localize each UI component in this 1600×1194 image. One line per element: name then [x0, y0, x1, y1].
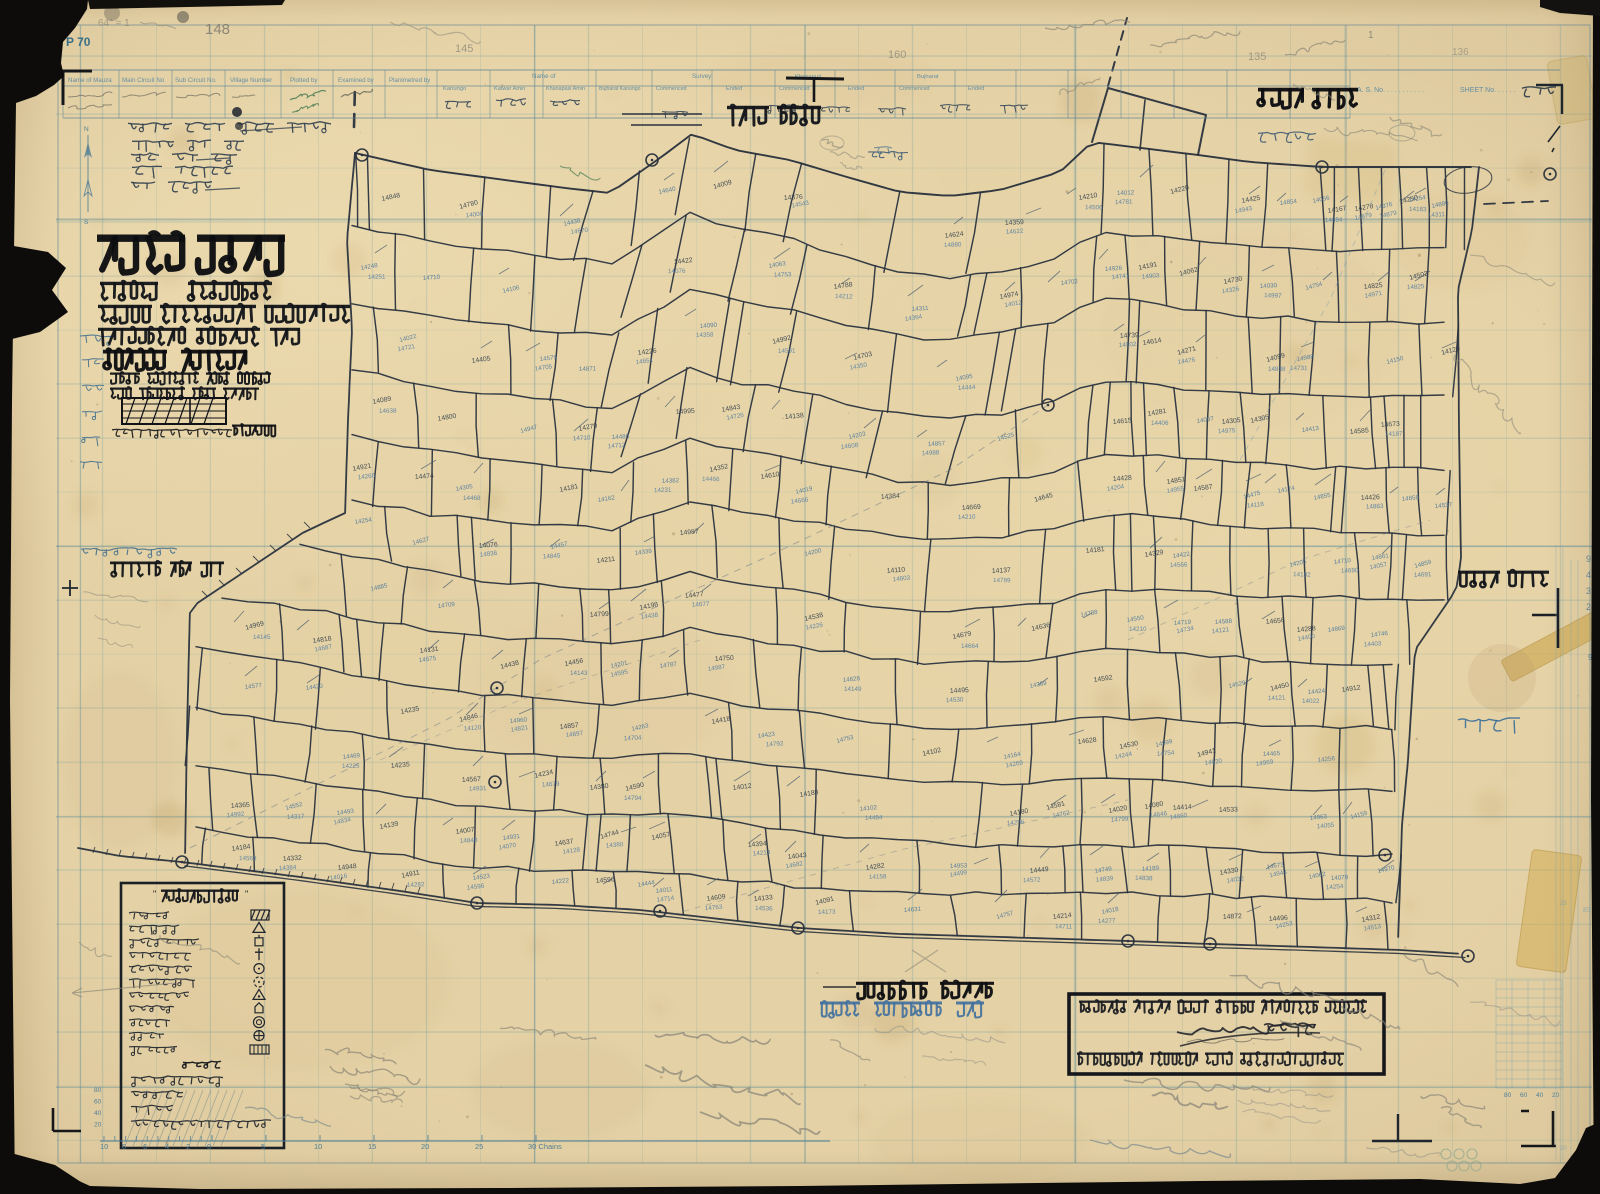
svg-text:14603: 14603 — [892, 575, 911, 584]
svg-text:14244: 14244 — [1114, 751, 1133, 761]
svg-text:Kanungo: Kanungo — [443, 86, 466, 92]
svg-text:14931: 14931 — [502, 833, 520, 842]
svg-text:14660: 14660 — [1169, 812, 1188, 821]
svg-text:2: 2 — [186, 1142, 190, 1151]
svg-text:14120: 14120 — [464, 724, 483, 733]
svg-text:4: 4 — [165, 1142, 169, 1151]
svg-text:14753: 14753 — [836, 734, 855, 745]
svg-text:14537: 14537 — [1435, 501, 1453, 510]
svg-text:60: 60 — [1520, 1092, 1528, 1099]
svg-text:14277: 14277 — [1098, 918, 1116, 926]
svg-text:1: 1 — [1368, 30, 1374, 41]
svg-text:14012: 14012 — [732, 783, 752, 792]
svg-text:14159: 14159 — [1350, 810, 1369, 821]
svg-text:Main Circuit No: Main Circuit No — [122, 77, 165, 84]
svg-text:14254: 14254 — [354, 516, 373, 526]
svg-text:14608: 14608 — [840, 442, 859, 451]
svg-text:14709: 14709 — [437, 601, 455, 610]
svg-text:14365: 14365 — [231, 802, 251, 810]
svg-text:14703: 14703 — [853, 351, 873, 362]
svg-text:14836: 14836 — [479, 550, 498, 559]
svg-text:14834: 14834 — [333, 816, 352, 827]
svg-text:14638: 14638 — [379, 408, 397, 415]
svg-text:14714: 14714 — [656, 895, 675, 904]
svg-text:14871: 14871 — [579, 365, 597, 373]
svg-text:14332: 14332 — [283, 855, 303, 863]
svg-text:14669: 14669 — [962, 504, 982, 512]
svg-text:14182: 14182 — [1293, 571, 1311, 579]
svg-text:14369: 14369 — [1029, 680, 1048, 690]
svg-text:14210: 14210 — [958, 514, 976, 522]
svg-text:40: 40 — [94, 1110, 102, 1117]
svg-text:14854: 14854 — [1279, 198, 1297, 207]
svg-text:14222: 14222 — [551, 877, 569, 886]
svg-text:14530: 14530 — [946, 696, 964, 704]
svg-text:14339: 14339 — [634, 548, 653, 557]
svg-text:14590: 14590 — [625, 782, 645, 793]
svg-text:P 70: P 70 — [66, 35, 91, 49]
svg-text:14848: 14848 — [460, 837, 478, 845]
svg-text:14251: 14251 — [368, 274, 386, 281]
svg-text:14426: 14426 — [1361, 494, 1380, 502]
svg-text:14183: 14183 — [1409, 206, 1427, 213]
svg-text:14955: 14955 — [1166, 485, 1185, 495]
svg-text:14269: 14269 — [1005, 759, 1024, 769]
svg-text:14466: 14466 — [702, 476, 720, 483]
svg-text:14799: 14799 — [1111, 816, 1129, 824]
svg-text:14138: 14138 — [785, 412, 805, 421]
svg-text:14076: 14076 — [668, 268, 686, 275]
svg-text:14422: 14422 — [1172, 551, 1191, 560]
svg-text:14645: 14645 — [1034, 492, 1054, 504]
svg-text:14911: 14911 — [401, 869, 421, 880]
svg-text:14143: 14143 — [570, 670, 588, 677]
svg-text:14012: 14012 — [1004, 299, 1023, 309]
svg-text:14405: 14405 — [471, 355, 491, 365]
svg-text:14162: 14162 — [597, 494, 616, 504]
svg-text:14656: 14656 — [1265, 617, 1285, 626]
svg-text:14016: 14016 — [329, 873, 348, 882]
svg-text:14988: 14988 — [922, 449, 940, 457]
svg-text:14523: 14523 — [472, 873, 491, 882]
svg-text:14711: 14711 — [1055, 923, 1073, 931]
svg-text:20: 20 — [94, 1122, 102, 1129]
svg-text:14969: 14969 — [1255, 759, 1274, 768]
svg-text:14502: 14502 — [1119, 341, 1137, 349]
svg-text:14679: 14679 — [952, 630, 972, 641]
svg-text:14145: 14145 — [253, 634, 271, 641]
svg-text:14457: 14457 — [550, 540, 569, 551]
svg-text:14011: 14011 — [655, 886, 673, 895]
svg-text:14282: 14282 — [865, 862, 885, 872]
svg-text:14781: 14781 — [1115, 198, 1133, 206]
svg-text:14358: 14358 — [696, 332, 714, 340]
svg-text:14753: 14753 — [774, 271, 792, 279]
svg-text:14484: 14484 — [865, 814, 883, 822]
svg-text:14403: 14403 — [1364, 640, 1382, 648]
svg-text:14620: 14620 — [1204, 758, 1223, 767]
svg-text:Plotted by: Plotted by — [290, 77, 318, 84]
svg-text:Katwar Amin: Katwar Amin — [494, 86, 525, 92]
svg-text:14486: 14486 — [612, 433, 630, 441]
svg-text:14449: 14449 — [1029, 866, 1049, 875]
svg-text:14055: 14055 — [1317, 822, 1336, 831]
svg-text:14702: 14702 — [1060, 278, 1078, 287]
svg-text:Ended: Ended — [848, 86, 864, 92]
svg-text:14352: 14352 — [709, 463, 729, 474]
svg-text:14691: 14691 — [1414, 571, 1432, 579]
svg-text:14214: 14214 — [1052, 912, 1072, 921]
svg-text:14754: 14754 — [1157, 749, 1176, 758]
svg-text:14566: 14566 — [1170, 561, 1188, 569]
svg-text:14552: 14552 — [285, 801, 304, 812]
svg-text:80: 80 — [94, 1087, 102, 1094]
svg-text:14469: 14469 — [342, 752, 360, 761]
svg-text:14009: 14009 — [713, 179, 733, 191]
svg-text:14380: 14380 — [606, 841, 625, 850]
svg-text:83: 83 — [1583, 907, 1591, 914]
svg-text:14872: 14872 — [1223, 913, 1242, 921]
svg-text:14592: 14592 — [1093, 674, 1113, 684]
svg-text:14800: 14800 — [437, 413, 457, 423]
svg-text:14855: 14855 — [1313, 492, 1332, 502]
svg-text:14181: 14181 — [1085, 546, 1105, 555]
svg-text:14788: 14788 — [833, 281, 853, 291]
svg-text:14187: 14187 — [1385, 431, 1403, 438]
svg-text:14948: 14948 — [337, 863, 357, 872]
svg-text:14690: 14690 — [1341, 567, 1359, 575]
svg-text:14757: 14757 — [996, 910, 1015, 921]
svg-text:14995: 14995 — [676, 408, 696, 416]
svg-text:14149: 14149 — [844, 686, 862, 693]
svg-text:135: 135 — [1248, 51, 1266, 63]
svg-text:14450: 14450 — [1270, 682, 1290, 693]
svg-text:Planimetred by: Planimetred by — [389, 77, 431, 84]
svg-text:14000: 14000 — [465, 211, 484, 220]
svg-text:14588: 14588 — [1215, 618, 1233, 626]
svg-text:14677: 14677 — [692, 601, 710, 609]
svg-text:14266: 14266 — [357, 472, 376, 481]
svg-text:Commenced: Commenced — [899, 86, 930, 92]
svg-text:145: 145 — [455, 43, 473, 55]
svg-text:14212: 14212 — [835, 293, 853, 301]
svg-text:14636: 14636 — [1031, 622, 1051, 633]
svg-text:14631: 14631 — [904, 906, 922, 914]
svg-text:14158: 14158 — [869, 873, 887, 881]
svg-text:14495: 14495 — [950, 687, 969, 695]
svg-text:14628: 14628 — [1077, 737, 1097, 746]
svg-text:14530: 14530 — [1119, 740, 1139, 751]
svg-text:14468: 14468 — [463, 495, 481, 502]
svg-text:14413: 14413 — [1301, 425, 1319, 434]
svg-text:14174: 14174 — [1277, 485, 1296, 495]
svg-text:14536: 14536 — [755, 905, 773, 913]
svg-text:14997: 14997 — [1264, 292, 1282, 300]
svg-text:14200: 14200 — [804, 547, 823, 558]
svg-text:14992: 14992 — [226, 811, 245, 820]
svg-text:14637: 14637 — [554, 838, 574, 848]
svg-text:14609: 14609 — [706, 893, 726, 903]
svg-text:14022: 14022 — [399, 333, 418, 344]
svg-text:14861: 14861 — [1371, 552, 1390, 562]
svg-text:14839: 14839 — [1095, 875, 1114, 884]
svg-text:14091: 14091 — [815, 896, 835, 907]
svg-text:14596: 14596 — [466, 883, 485, 892]
svg-text:14710: 14710 — [423, 274, 441, 282]
svg-text:14428: 14428 — [1113, 475, 1133, 483]
svg-text:14731: 14731 — [1290, 365, 1308, 372]
svg-text:14089: 14089 — [372, 395, 392, 406]
svg-text:20: 20 — [421, 1142, 429, 1151]
svg-text:14533: 14533 — [1219, 806, 1238, 814]
svg-text:14912: 14912 — [1341, 684, 1361, 694]
svg-text:8: 8 — [122, 1142, 126, 1151]
svg-text:14493: 14493 — [336, 808, 355, 817]
svg-text:6: 6 — [143, 1142, 147, 1151]
svg-text:14102: 14102 — [859, 804, 877, 813]
svg-text:14020: 14020 — [1108, 805, 1128, 815]
svg-text:14746: 14746 — [1370, 630, 1388, 639]
svg-text:14281: 14281 — [1147, 408, 1167, 418]
svg-text:14137: 14137 — [992, 567, 1011, 575]
svg-text:25: 25 — [1560, 901, 1567, 907]
svg-text:14131: 14131 — [419, 646, 439, 655]
svg-text:14063: 14063 — [768, 260, 787, 270]
svg-text:14210: 14210 — [1078, 192, 1098, 202]
svg-text:14384: 14384 — [279, 864, 297, 872]
svg-text:5: 5 — [261, 1142, 265, 1151]
svg-text:14305: 14305 — [455, 483, 474, 493]
svg-text:14799: 14799 — [993, 577, 1011, 584]
svg-text:14400: 14400 — [1297, 633, 1316, 643]
svg-text:14567: 14567 — [462, 776, 481, 784]
svg-text:14857: 14857 — [928, 440, 946, 448]
svg-text:14710: 14710 — [1333, 557, 1351, 566]
svg-text:14885: 14885 — [370, 582, 389, 593]
svg-text:14679: 14679 — [542, 781, 560, 789]
svg-text:SHEET No. . . . . .: SHEET No. . . . . . — [1460, 87, 1516, 94]
svg-text:14173: 14173 — [818, 909, 836, 916]
svg-text:14180: 14180 — [1009, 808, 1029, 818]
svg-text:2: 2 — [1586, 602, 1591, 612]
svg-text:14380: 14380 — [589, 783, 609, 792]
svg-text:14394: 14394 — [748, 840, 768, 849]
svg-text:14848: 14848 — [381, 192, 401, 203]
svg-text:N: N — [84, 126, 89, 133]
svg-text:14744: 14744 — [600, 829, 620, 841]
svg-text:14012: 14012 — [1117, 189, 1135, 197]
svg-text:14585: 14585 — [1350, 427, 1370, 436]
svg-text:14992: 14992 — [772, 335, 792, 346]
svg-text:14121: 14121 — [1268, 694, 1286, 702]
svg-text:": " — [153, 889, 156, 899]
svg-text:14710: 14710 — [573, 434, 591, 442]
svg-text:160: 160 — [888, 49, 906, 61]
svg-text:14270: 14270 — [578, 422, 598, 433]
svg-text:14007: 14007 — [455, 826, 475, 836]
svg-text:14118: 14118 — [1246, 501, 1264, 510]
svg-text:14682: 14682 — [785, 860, 804, 870]
svg-text:14438: 14438 — [563, 217, 582, 228]
svg-text:14090: 14090 — [700, 322, 718, 330]
svg-text:14943: 14943 — [1234, 205, 1253, 215]
svg-text:Ended: Ended — [968, 86, 984, 92]
svg-text:14424: 14424 — [1308, 687, 1326, 696]
svg-text:Bujharat: Bujharat — [917, 74, 939, 80]
svg-text:14278: 14278 — [1354, 203, 1374, 213]
svg-text:14673: 14673 — [1381, 421, 1401, 429]
svg-text:14615: 14615 — [1113, 417, 1133, 426]
svg-text:14422: 14422 — [673, 257, 693, 266]
svg-text:15: 15 — [368, 1142, 376, 1151]
svg-text:14591: 14591 — [778, 348, 796, 355]
svg-text:14780: 14780 — [459, 199, 479, 211]
svg-text:14423: 14423 — [757, 731, 776, 740]
svg-text:14317: 14317 — [287, 813, 305, 821]
svg-text:S: S — [84, 219, 89, 226]
svg-text:60: 60 — [94, 1099, 102, 1106]
svg-text:14587: 14587 — [1193, 484, 1213, 493]
svg-text:14670: 14670 — [570, 227, 589, 236]
svg-text:14184: 14184 — [231, 843, 251, 853]
svg-text:14420: 14420 — [305, 683, 324, 692]
svg-text:14577: 14577 — [244, 682, 262, 691]
svg-text:25: 25 — [475, 1142, 483, 1151]
svg-text:14030: 14030 — [1260, 282, 1278, 290]
svg-text:14858: 14858 — [1401, 494, 1419, 503]
svg-text:14043: 14043 — [787, 852, 807, 861]
svg-text:Survey: Survey — [692, 73, 712, 80]
svg-text:14825: 14825 — [1407, 283, 1425, 291]
svg-text:14203: 14203 — [848, 430, 867, 441]
svg-text:14987: 14987 — [680, 528, 700, 537]
svg-text:14845: 14845 — [543, 552, 561, 560]
svg-text:14794: 14794 — [624, 795, 642, 802]
svg-text:14705: 14705 — [534, 363, 553, 372]
svg-text:14666: 14666 — [790, 496, 809, 505]
svg-text:14022: 14022 — [1302, 698, 1320, 705]
svg-text:14506: 14506 — [1085, 204, 1103, 211]
svg-text:14664: 14664 — [961, 643, 979, 650]
svg-text:14947: 14947 — [520, 424, 539, 435]
svg-text:20: 20 — [1560, 1146, 1567, 1152]
svg-text:14788: 14788 — [1080, 609, 1099, 619]
svg-text:14062: 14062 — [1308, 871, 1327, 881]
svg-text:14139: 14139 — [379, 820, 399, 831]
svg-text:14070: 14070 — [498, 842, 517, 852]
svg-text:14622: 14622 — [1006, 228, 1024, 236]
svg-text:14226: 14226 — [805, 621, 824, 631]
svg-text:14414: 14414 — [1173, 804, 1193, 812]
svg-text:14465: 14465 — [1263, 750, 1281, 758]
svg-text:14610: 14610 — [760, 471, 780, 481]
svg-text:14425: 14425 — [1241, 195, 1261, 205]
svg-text:80: 80 — [1504, 1092, 1512, 1099]
svg-text:14624: 14624 — [944, 231, 964, 240]
svg-text:Ended: Ended — [726, 86, 742, 92]
svg-text:14749: 14749 — [1094, 865, 1113, 875]
svg-text:14550: 14550 — [1126, 614, 1145, 624]
svg-text:14739: 14739 — [1120, 332, 1139, 340]
svg-text:Village Number: Village Number — [230, 77, 272, 84]
svg-text:14444: 14444 — [958, 384, 976, 392]
svg-text:14750: 14750 — [715, 655, 735, 663]
svg-text:14359: 14359 — [1005, 219, 1024, 227]
svg-text:Khanapasi Amin: Khanapasi Amin — [546, 86, 585, 92]
svg-text:Commenced: Commenced — [656, 86, 687, 92]
svg-text:14311: 14311 — [912, 305, 930, 313]
svg-text:14235: 14235 — [391, 761, 411, 770]
svg-text:14726: 14726 — [726, 412, 745, 422]
svg-text:14167: 14167 — [1327, 205, 1347, 215]
svg-text:14869: 14869 — [1327, 625, 1346, 634]
svg-text:14894: 14894 — [1325, 216, 1343, 224]
svg-text:14350: 14350 — [849, 361, 868, 371]
svg-text:14095: 14095 — [955, 373, 974, 383]
svg-text:14406: 14406 — [1151, 420, 1169, 427]
svg-text:14675: 14675 — [418, 655, 437, 664]
svg-text:Name of Mauza: Name of Mauza — [68, 77, 112, 84]
svg-text:14032: 14032 — [1226, 875, 1245, 885]
svg-text:14838: 14838 — [1268, 366, 1286, 373]
svg-text:14329: 14329 — [1144, 549, 1164, 559]
svg-text:14762: 14762 — [1052, 810, 1071, 820]
svg-text:14628: 14628 — [842, 675, 860, 684]
svg-text:30 Chains: 30 Chains — [528, 1142, 562, 1151]
svg-text:14189: 14189 — [1142, 865, 1160, 873]
svg-text:14921: 14921 — [352, 462, 372, 473]
svg-text:14704: 14704 — [624, 734, 642, 742]
svg-text:9: 9 — [1586, 554, 1591, 564]
svg-text:14926: 14926 — [1105, 265, 1123, 273]
svg-text:14799: 14799 — [590, 611, 610, 619]
svg-text:14311: 14311 — [1428, 211, 1446, 219]
svg-text:": " — [245, 889, 248, 899]
svg-text:3: 3 — [1586, 586, 1591, 596]
svg-text:136: 136 — [1452, 47, 1469, 58]
svg-text:14590: 14590 — [596, 876, 616, 885]
svg-text:14474: 14474 — [415, 473, 435, 481]
svg-text:14883: 14883 — [1366, 503, 1384, 511]
svg-text:14364: 14364 — [904, 313, 923, 323]
svg-text:14572: 14572 — [1023, 877, 1041, 885]
svg-text:14563: 14563 — [239, 855, 257, 862]
svg-text:14687: 14687 — [314, 643, 333, 653]
svg-text:14110: 14110 — [887, 566, 906, 575]
svg-text:14076: 14076 — [479, 541, 499, 550]
svg-text:4: 4 — [1586, 570, 1591, 580]
svg-text:14231: 14231 — [654, 487, 672, 495]
svg-text:14931: 14931 — [469, 785, 487, 793]
svg-text:14204: 14204 — [1106, 483, 1125, 493]
svg-text:14970: 14970 — [1377, 864, 1396, 875]
svg-text:14057: 14057 — [1369, 561, 1388, 571]
svg-text:14880: 14880 — [944, 241, 962, 249]
svg-text:14963: 14963 — [1309, 813, 1327, 822]
svg-text:Bujharat Kanungo: Bujharat Kanungo — [599, 86, 641, 92]
svg-text:0: 0 — [207, 1142, 211, 1151]
svg-text:Commenced: Commenced — [779, 86, 810, 92]
svg-text:14254: 14254 — [1326, 883, 1345, 892]
svg-text:10: 10 — [100, 1142, 108, 1151]
svg-text:Name of: Name of — [532, 73, 556, 80]
svg-text:14079: 14079 — [1331, 874, 1349, 882]
svg-text:14080: 14080 — [1144, 800, 1164, 811]
svg-text:14211: 14211 — [596, 556, 615, 565]
svg-text:14627: 14627 — [412, 536, 431, 547]
svg-text:14133: 14133 — [754, 894, 774, 903]
svg-text:14235: 14235 — [400, 705, 420, 716]
